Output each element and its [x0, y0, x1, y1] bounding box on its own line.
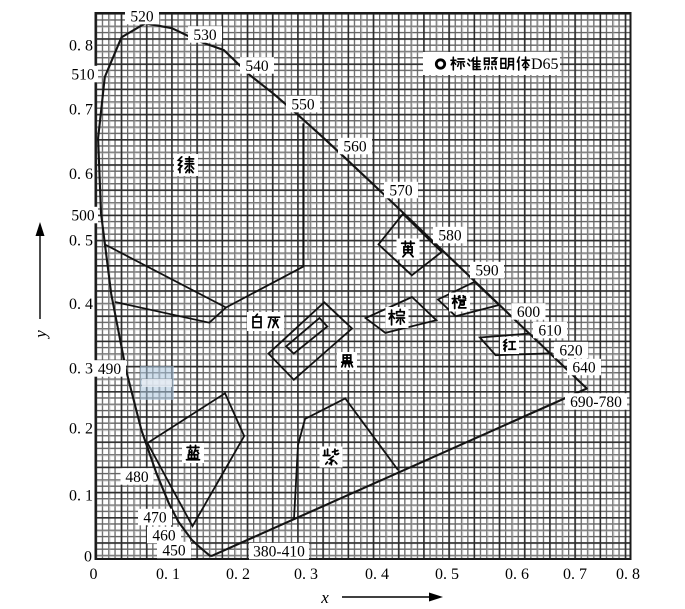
svg-text:0. 7: 0. 7 [563, 566, 587, 583]
svg-text:0. 5: 0. 5 [435, 566, 459, 583]
svg-text:0. 7: 0. 7 [69, 102, 93, 119]
svg-text:530: 530 [193, 27, 217, 44]
svg-text:580: 580 [438, 227, 462, 244]
svg-text:0. 8: 0. 8 [616, 566, 640, 583]
svg-text:0. 3: 0. 3 [69, 361, 93, 378]
svg-text:y: y [31, 330, 50, 340]
svg-text:0. 8: 0. 8 [69, 38, 93, 55]
svg-text:500: 500 [71, 207, 95, 224]
svg-text:600: 600 [517, 304, 541, 321]
svg-text:470: 470 [143, 509, 167, 526]
svg-text:550: 550 [291, 96, 315, 113]
svg-text:0. 6: 0. 6 [505, 566, 529, 583]
svg-text:D65: D65 [531, 56, 559, 73]
svg-text:570: 570 [389, 182, 413, 199]
svg-text:0. 5: 0. 5 [69, 233, 93, 250]
svg-text:0. 1: 0. 1 [156, 566, 180, 583]
svg-text:0. 3: 0. 3 [294, 566, 318, 583]
svg-text:0. 2: 0. 2 [226, 566, 250, 583]
svg-text:0. 1: 0. 1 [69, 488, 93, 505]
svg-text:480: 480 [125, 469, 149, 486]
svg-text:0. 2: 0. 2 [69, 421, 93, 438]
svg-text:590: 590 [475, 262, 499, 279]
svg-text:0. 6: 0. 6 [69, 166, 93, 183]
svg-text:690-780: 690-780 [570, 394, 622, 411]
svg-text:510: 510 [71, 66, 95, 83]
svg-text:560: 560 [343, 138, 367, 155]
svg-text:450: 450 [162, 542, 186, 559]
svg-text:0. 4: 0. 4 [365, 566, 389, 583]
svg-text:0: 0 [90, 566, 98, 583]
svg-text:540: 540 [245, 58, 269, 75]
svg-text:x: x [320, 588, 329, 607]
svg-text:640: 640 [572, 359, 596, 376]
svg-text:620: 620 [559, 342, 583, 359]
svg-text:520: 520 [130, 8, 154, 25]
svg-text:0. 4: 0. 4 [69, 296, 93, 313]
svg-text:610: 610 [538, 322, 562, 339]
svg-text:0: 0 [84, 549, 92, 566]
svg-text:380-410: 380-410 [253, 543, 305, 560]
svg-text:490: 490 [98, 361, 122, 378]
